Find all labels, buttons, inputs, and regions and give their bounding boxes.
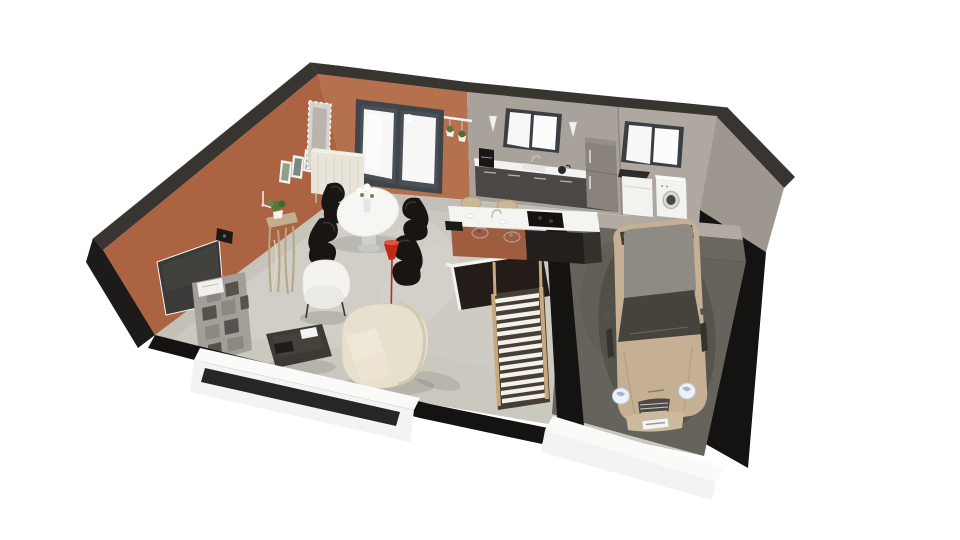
fridge bbox=[585, 137, 618, 212]
car-headlight-left bbox=[613, 388, 630, 404]
armchair bbox=[300, 260, 350, 325]
tumble-dryer bbox=[655, 175, 687, 219]
fruit-2 bbox=[509, 233, 513, 237]
hob-ring-2 bbox=[549, 219, 553, 223]
fruit-1 bbox=[477, 229, 481, 233]
washing-machine-toploader bbox=[618, 169, 653, 217]
island-end-face bbox=[583, 232, 602, 264]
stair-post-left bbox=[494, 262, 495, 296]
door-glass-light bbox=[405, 114, 413, 122]
island-base-front bbox=[451, 226, 527, 260]
table-base bbox=[358, 244, 380, 252]
island-base-black bbox=[525, 230, 585, 264]
cup-2 bbox=[500, 220, 507, 224]
kitchen-window bbox=[503, 108, 562, 153]
curved-sofa bbox=[338, 302, 434, 396]
island-tray bbox=[445, 221, 463, 231]
island-hob bbox=[527, 211, 564, 228]
laundry-window bbox=[621, 121, 684, 168]
car-roof bbox=[624, 224, 696, 302]
car-headlight-right bbox=[679, 383, 696, 399]
floor-plan-scene bbox=[0, 0, 960, 540]
cup-1 bbox=[467, 214, 474, 218]
door-panel-right-glass bbox=[402, 114, 436, 184]
floor-plan-render bbox=[0, 0, 960, 540]
coffee-maker bbox=[479, 148, 494, 168]
sliding-glass-door bbox=[354, 99, 444, 194]
hob-ring-1 bbox=[538, 216, 542, 220]
